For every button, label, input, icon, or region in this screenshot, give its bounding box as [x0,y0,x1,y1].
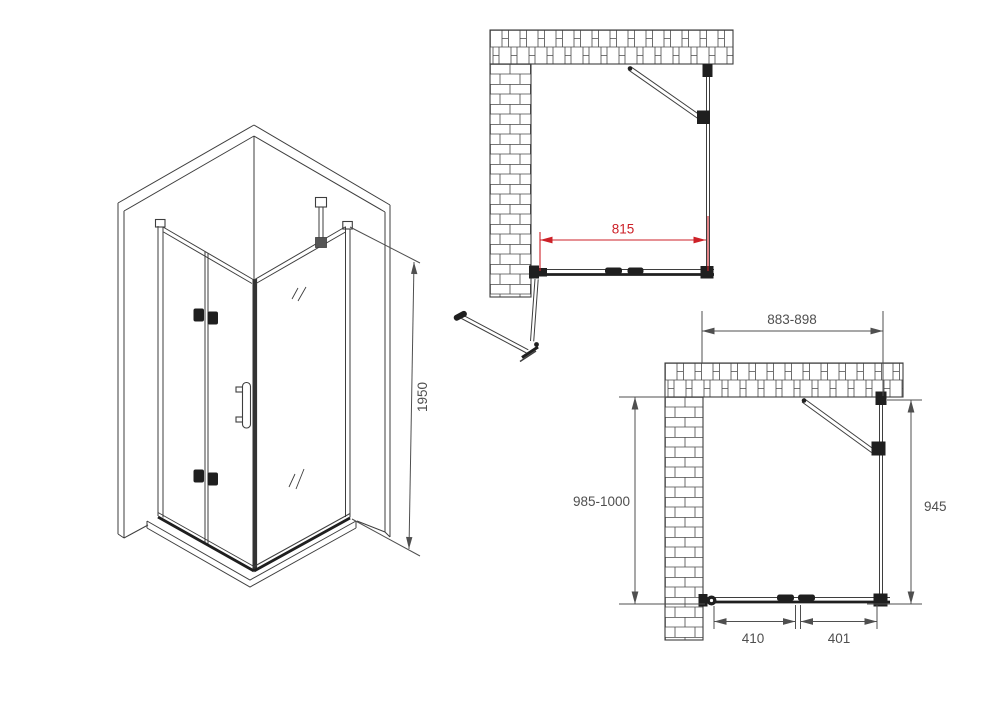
bifold-door [156,220,255,546]
fixed-glass-panel [876,392,887,601]
opening-width-dimension: 815 [540,216,708,271]
technical-drawing-sheet: 1950 [0,0,1000,707]
wall-clamp [703,64,713,77]
isometric-view: 1950 [118,125,430,587]
handle-block [605,268,622,275]
door-pull-handle [236,383,251,429]
side-wall [490,64,531,297]
corner-bracket [529,266,539,279]
side-panel-dimension: 945 [867,400,947,604]
dim-label-door-right: 401 [828,631,851,646]
support-bar [316,198,327,248]
dim-label-total-depth: 985-1000 [573,494,630,509]
back-wall [665,363,903,397]
support-bar [628,66,710,124]
wall-profile-cap [156,220,166,228]
door-left-dimension: 410 [714,605,796,646]
door-knob [453,310,468,322]
bar-bracket [697,111,710,125]
door-track [529,266,714,279]
plan-view-door-closed: 883-898 985-1000 945 410 [573,311,947,646]
corner-bracket [699,594,708,607]
plan-view-door-open: 815 [453,30,733,362]
door-track [699,594,891,607]
end-bracket [701,266,714,279]
dim-label-side-panel: 945 [924,499,947,514]
walls [490,30,733,297]
end-bracket [874,594,888,607]
bar-bracket [872,442,886,456]
door-right-dimension: 401 [801,605,878,646]
fixed-side-panel [254,222,352,518]
fold-hinge-upper [194,309,219,325]
handle-block [798,595,815,602]
back-wall [490,30,733,64]
dim-label-height: 1950 [415,382,430,412]
shower-enclosure-drawing: 1950 [0,0,1000,707]
handle-block [628,268,644,275]
dim-label-door-left: 410 [742,631,765,646]
glass-reflection-marks [289,287,306,489]
handle-block [777,595,794,602]
support-bar [802,398,886,455]
shower-tray [147,513,356,588]
fold-hinge-lower [194,470,219,486]
wall-clamp [876,392,887,406]
dim-label-opening-width: 815 [612,222,635,237]
dim-label-total-width: 883-898 [767,312,817,327]
corner-post [253,279,258,571]
